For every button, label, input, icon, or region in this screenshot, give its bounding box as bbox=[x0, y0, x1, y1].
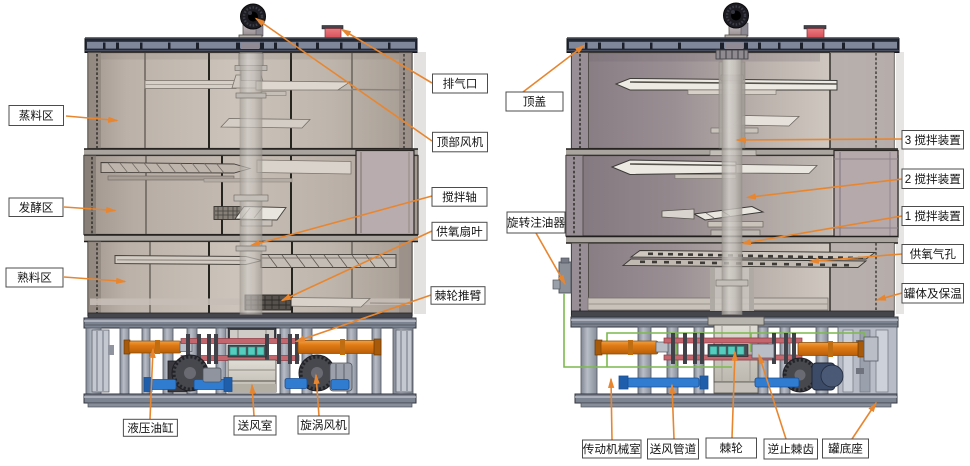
svg-text:罐体及保温: 罐体及保温 bbox=[904, 286, 962, 300]
svg-text:旋转注油器: 旋转注油器 bbox=[507, 216, 565, 230]
svg-text:蒸料区: 蒸料区 bbox=[19, 109, 54, 123]
svg-text:熟料区: 熟料区 bbox=[17, 271, 52, 285]
svg-text:传动机械室: 传动机械室 bbox=[583, 442, 641, 456]
svg-text:1 搅拌装置: 1 搅拌装置 bbox=[905, 209, 961, 223]
svg-text:罐底座: 罐底座 bbox=[828, 442, 863, 456]
svg-text:2 搅拌装置: 2 搅拌装置 bbox=[905, 172, 961, 186]
svg-text:3 搅拌装置: 3 搅拌装置 bbox=[905, 133, 961, 147]
svg-text:棘轮推臂: 棘轮推臂 bbox=[435, 289, 482, 303]
svg-text:供氧扇叶: 供氧扇叶 bbox=[436, 224, 483, 238]
svg-text:排气口: 排气口 bbox=[443, 77, 478, 91]
svg-text:棘轮: 棘轮 bbox=[720, 441, 744, 455]
svg-text:顶盖: 顶盖 bbox=[523, 95, 547, 109]
svg-text:发酵区: 发酵区 bbox=[19, 200, 54, 214]
svg-text:液压油缸: 液压油缸 bbox=[127, 421, 174, 435]
svg-text:送风室: 送风室 bbox=[238, 419, 273, 433]
svg-text:供氧气孔: 供氧气孔 bbox=[910, 247, 957, 261]
svg-text:旋涡风机: 旋涡风机 bbox=[300, 418, 347, 432]
svg-text:逆止棘齿: 逆止棘齿 bbox=[768, 442, 815, 456]
svg-text:送风管道: 送风管道 bbox=[650, 442, 697, 456]
svg-text:搅拌轴: 搅拌轴 bbox=[442, 190, 477, 204]
svg-text:顶部风机: 顶部风机 bbox=[437, 135, 484, 149]
